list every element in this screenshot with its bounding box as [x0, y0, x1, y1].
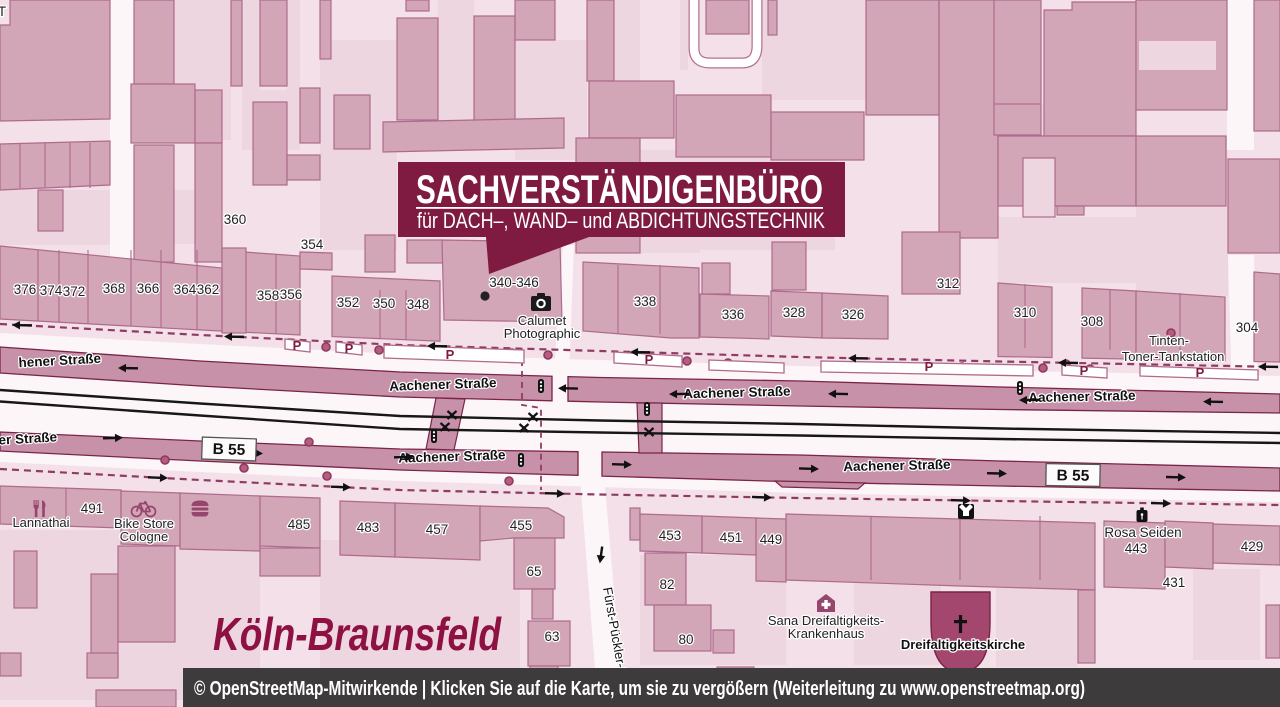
- svg-text:364: 364: [174, 282, 197, 297]
- svg-text:Rosa Seiden: Rosa Seiden: [1104, 525, 1181, 540]
- svg-text:336: 336: [722, 307, 745, 322]
- svg-text:P: P: [345, 341, 354, 356]
- svg-text:340-346: 340-346: [489, 275, 539, 290]
- svg-text:Köln-Braunsfeld: Köln-Braunsfeld: [213, 608, 502, 660]
- svg-text:Lannathai: Lannathai: [12, 515, 69, 530]
- svg-text:B 55: B 55: [212, 441, 246, 459]
- svg-text:304: 304: [1236, 320, 1259, 335]
- svg-text:374: 374: [40, 283, 63, 298]
- svg-text:449: 449: [760, 532, 783, 547]
- svg-text:80: 80: [678, 632, 693, 647]
- svg-text:P: P: [925, 359, 934, 374]
- svg-text:326: 326: [842, 307, 865, 322]
- svg-text:Toner-Tankstation: Toner-Tankstation: [1122, 349, 1225, 364]
- svg-text:308: 308: [1081, 314, 1104, 329]
- svg-text:338: 338: [634, 294, 657, 309]
- svg-text:Cologne: Cologne: [120, 529, 168, 544]
- svg-text:485: 485: [288, 517, 311, 532]
- svg-text:451: 451: [720, 530, 743, 545]
- svg-text:312: 312: [937, 276, 960, 291]
- svg-text:362: 362: [197, 282, 220, 297]
- svg-text:P: P: [293, 338, 302, 353]
- svg-text:Aachener Straße: Aachener Straße: [843, 457, 951, 474]
- svg-text:Aachener Straße: Aachener Straße: [683, 384, 791, 402]
- svg-text:453: 453: [659, 528, 682, 543]
- svg-text:455: 455: [510, 518, 533, 533]
- svg-text:P: P: [645, 352, 654, 367]
- svg-text:360: 360: [224, 212, 247, 227]
- svg-text:B 55: B 55: [1056, 467, 1089, 485]
- svg-text:82: 82: [659, 577, 674, 592]
- svg-text:352: 352: [337, 295, 360, 310]
- svg-text:354: 354: [301, 237, 324, 252]
- svg-text:P: P: [1196, 365, 1205, 380]
- svg-text:348: 348: [407, 297, 430, 312]
- svg-text:P: P: [446, 347, 455, 362]
- svg-text:© OpenStreetMap-Mitwirkende |: © OpenStreetMap-Mitwirkende | Klicken Si…: [194, 678, 1085, 700]
- svg-text:T: T: [0, 4, 6, 19]
- svg-text:356: 356: [280, 287, 303, 302]
- svg-text:443: 443: [1125, 541, 1148, 556]
- svg-text:Tinten-: Tinten-: [1149, 333, 1189, 348]
- svg-text:350: 350: [373, 296, 396, 311]
- svg-text:65: 65: [526, 564, 541, 579]
- svg-text:310: 310: [1014, 305, 1037, 320]
- svg-text:328: 328: [783, 305, 806, 320]
- svg-text:483: 483: [357, 520, 380, 535]
- svg-text:376: 376: [14, 282, 37, 297]
- svg-text:358: 358: [257, 288, 280, 303]
- svg-text:Photographic: Photographic: [504, 326, 581, 341]
- svg-text:Krankenhaus: Krankenhaus: [788, 626, 865, 641]
- svg-text:SACHVERSTÄNDIGENBÜRO: SACHVERSTÄNDIGENBÜRO: [416, 167, 823, 212]
- svg-text:372: 372: [63, 284, 86, 299]
- svg-text:491: 491: [81, 501, 104, 516]
- svg-text:366: 366: [137, 281, 160, 296]
- svg-text:Aachener Straße: Aachener Straße: [1028, 388, 1136, 405]
- svg-text:P: P: [1080, 363, 1089, 378]
- svg-text:63: 63: [544, 629, 559, 644]
- svg-text:457: 457: [426, 522, 449, 537]
- svg-text:429: 429: [1241, 539, 1264, 554]
- svg-text:für DACH–, WAND– und ABDICHTUN: für DACH–, WAND– und ABDICHTUNGSTECHNIK: [417, 208, 825, 233]
- svg-text:Dreifaltigkeitskirche: Dreifaltigkeitskirche: [901, 637, 1025, 652]
- svg-text:368: 368: [103, 281, 126, 296]
- svg-text:431: 431: [1163, 575, 1186, 590]
